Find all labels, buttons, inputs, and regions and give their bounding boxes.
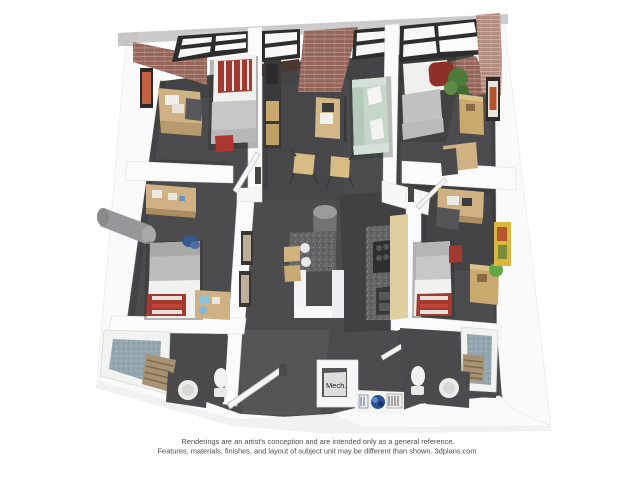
svg-text:Renderings are an artist's con: Renderings are an artist's conception an… [182,437,455,446]
svg-text:Features, materials, finishes,: Features, materials, finishes, and layou… [157,447,476,456]
svg-text:Mech.: Mech. [326,381,346,390]
